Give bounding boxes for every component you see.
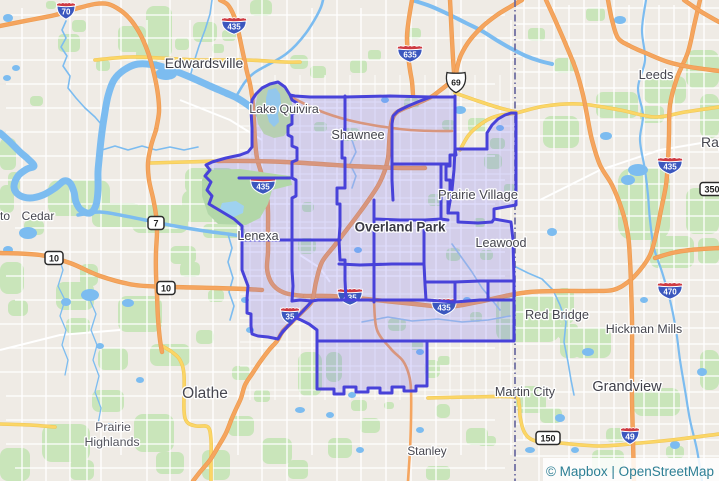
svg-text:Prairie: Prairie	[95, 420, 131, 434]
svg-text:Highlands: Highlands	[84, 435, 139, 449]
svg-text:Rayt: Rayt	[701, 134, 719, 150]
svg-text:10: 10	[49, 253, 59, 263]
svg-text:Red Bridge: Red Bridge	[525, 307, 589, 322]
svg-text:Lake Quivira: Lake Quivira	[249, 102, 319, 116]
svg-text:Leeds: Leeds	[639, 67, 674, 82]
svg-text:Hickman Mills: Hickman Mills	[606, 322, 682, 336]
svg-text:Leawood: Leawood	[475, 236, 526, 250]
svg-text:150: 150	[540, 433, 555, 443]
svg-text:Edwardsville: Edwardsville	[165, 55, 244, 71]
svg-text:470: 470	[663, 288, 677, 297]
svg-text:435: 435	[437, 304, 451, 313]
svg-text:435: 435	[227, 23, 241, 32]
svg-text:Prairie Village: Prairie Village	[438, 187, 518, 202]
svg-text:7: 7	[153, 218, 158, 228]
svg-text:635: 635	[403, 51, 417, 60]
svg-text:435: 435	[256, 183, 270, 192]
svg-text:435: 435	[663, 163, 677, 172]
svg-text:Shawnee: Shawnee	[331, 127, 384, 142]
svg-text:Overland Park: Overland Park	[355, 220, 446, 235]
svg-text:Cedar: Cedar	[22, 209, 55, 223]
svg-text:Olathe: Olathe	[182, 385, 228, 402]
svg-text:49: 49	[625, 432, 635, 442]
svg-text:Grandview: Grandview	[592, 379, 662, 395]
svg-text:Stanley: Stanley	[407, 444, 446, 458]
svg-text:© Mapbox | OpenStreetMap: © Mapbox | OpenStreetMap	[546, 464, 714, 479]
svg-text:70: 70	[62, 8, 71, 17]
svg-text:69: 69	[451, 77, 461, 87]
svg-text:Martin City: Martin City	[495, 385, 556, 399]
svg-text:350: 350	[704, 184, 719, 194]
svg-text:to: to	[0, 209, 10, 223]
svg-text:10: 10	[161, 283, 171, 293]
svg-text:Lenexa: Lenexa	[237, 229, 278, 243]
